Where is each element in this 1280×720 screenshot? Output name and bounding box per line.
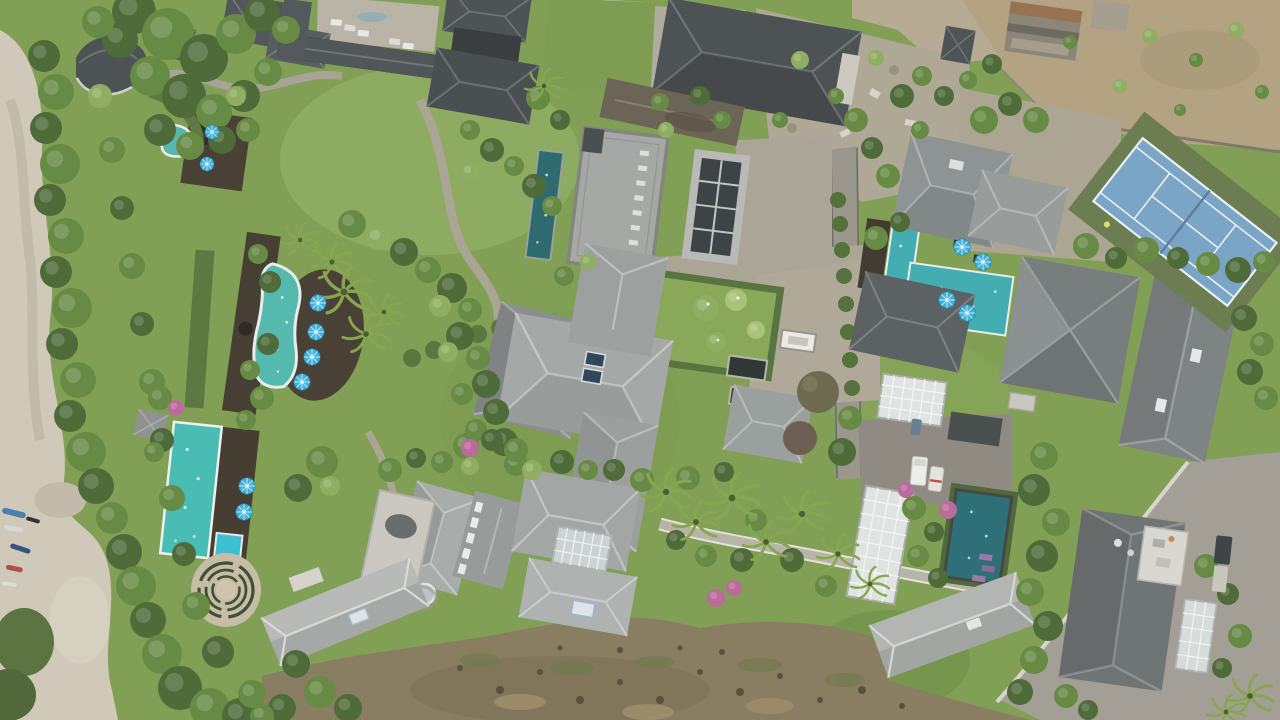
umbrella xyxy=(954,239,970,255)
glass-pergola-1 xyxy=(877,374,947,426)
bale-pavilion xyxy=(780,330,816,353)
umbrella xyxy=(308,324,324,340)
umbrella xyxy=(975,254,991,270)
white-pavilion-small xyxy=(1008,392,1036,411)
white-cart xyxy=(928,466,944,492)
lawn-topcenter xyxy=(543,0,656,93)
pyramid-roof-villa xyxy=(1000,257,1140,404)
white-van xyxy=(910,456,927,485)
white-annex-se xyxy=(1137,526,1188,586)
dark-pavilion-north xyxy=(940,26,975,65)
aerial-photo: Aerial drone view of a tropical villa re… xyxy=(0,0,1280,720)
umbrella xyxy=(939,292,955,308)
shack-roof-small xyxy=(1091,0,1130,32)
reflecting-pond-1 xyxy=(727,355,767,380)
umbrella xyxy=(294,374,310,390)
shack-roof xyxy=(1004,1,1082,61)
umbrella xyxy=(236,504,252,520)
umbrella xyxy=(200,157,214,171)
umbrella xyxy=(959,305,975,321)
umbrella xyxy=(239,478,255,494)
umbrella xyxy=(310,295,326,311)
umbrella xyxy=(304,349,320,365)
southeast-pool-area xyxy=(937,483,1018,591)
umbrella xyxy=(205,125,219,139)
